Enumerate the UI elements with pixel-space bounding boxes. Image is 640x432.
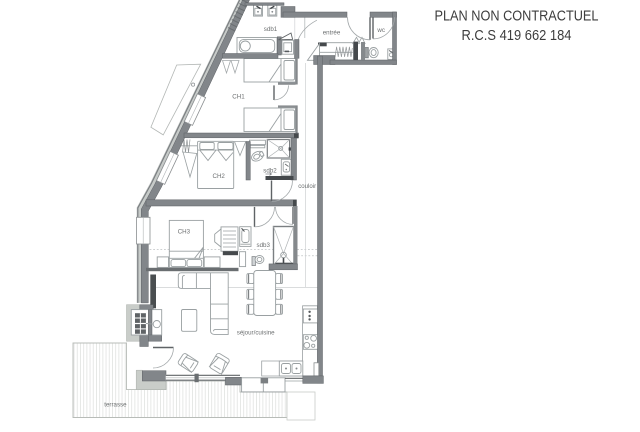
svg-text:sdb2: sdb2 xyxy=(263,168,277,175)
svg-text:CH3: CH3 xyxy=(178,228,191,235)
svg-text:CH1: CH1 xyxy=(232,94,245,101)
svg-text:sdb3: sdb3 xyxy=(256,242,270,249)
svg-text:séjour/cuisine: séjour/cuisine xyxy=(237,329,275,336)
svg-text:entrée: entrée xyxy=(323,30,341,37)
svg-text:CH2: CH2 xyxy=(213,173,226,180)
svg-text:PLAN NON CONTRACTUEL: PLAN NON CONTRACTUEL xyxy=(435,9,599,25)
svg-text:R.C.S 419 662 184: R.C.S 419 662 184 xyxy=(462,28,572,44)
svg-text:wc: wc xyxy=(376,27,385,34)
svg-text:sdb1: sdb1 xyxy=(264,26,278,33)
svg-text:couloir: couloir xyxy=(298,183,316,190)
svg-text:terrasse: terrasse xyxy=(104,402,127,409)
